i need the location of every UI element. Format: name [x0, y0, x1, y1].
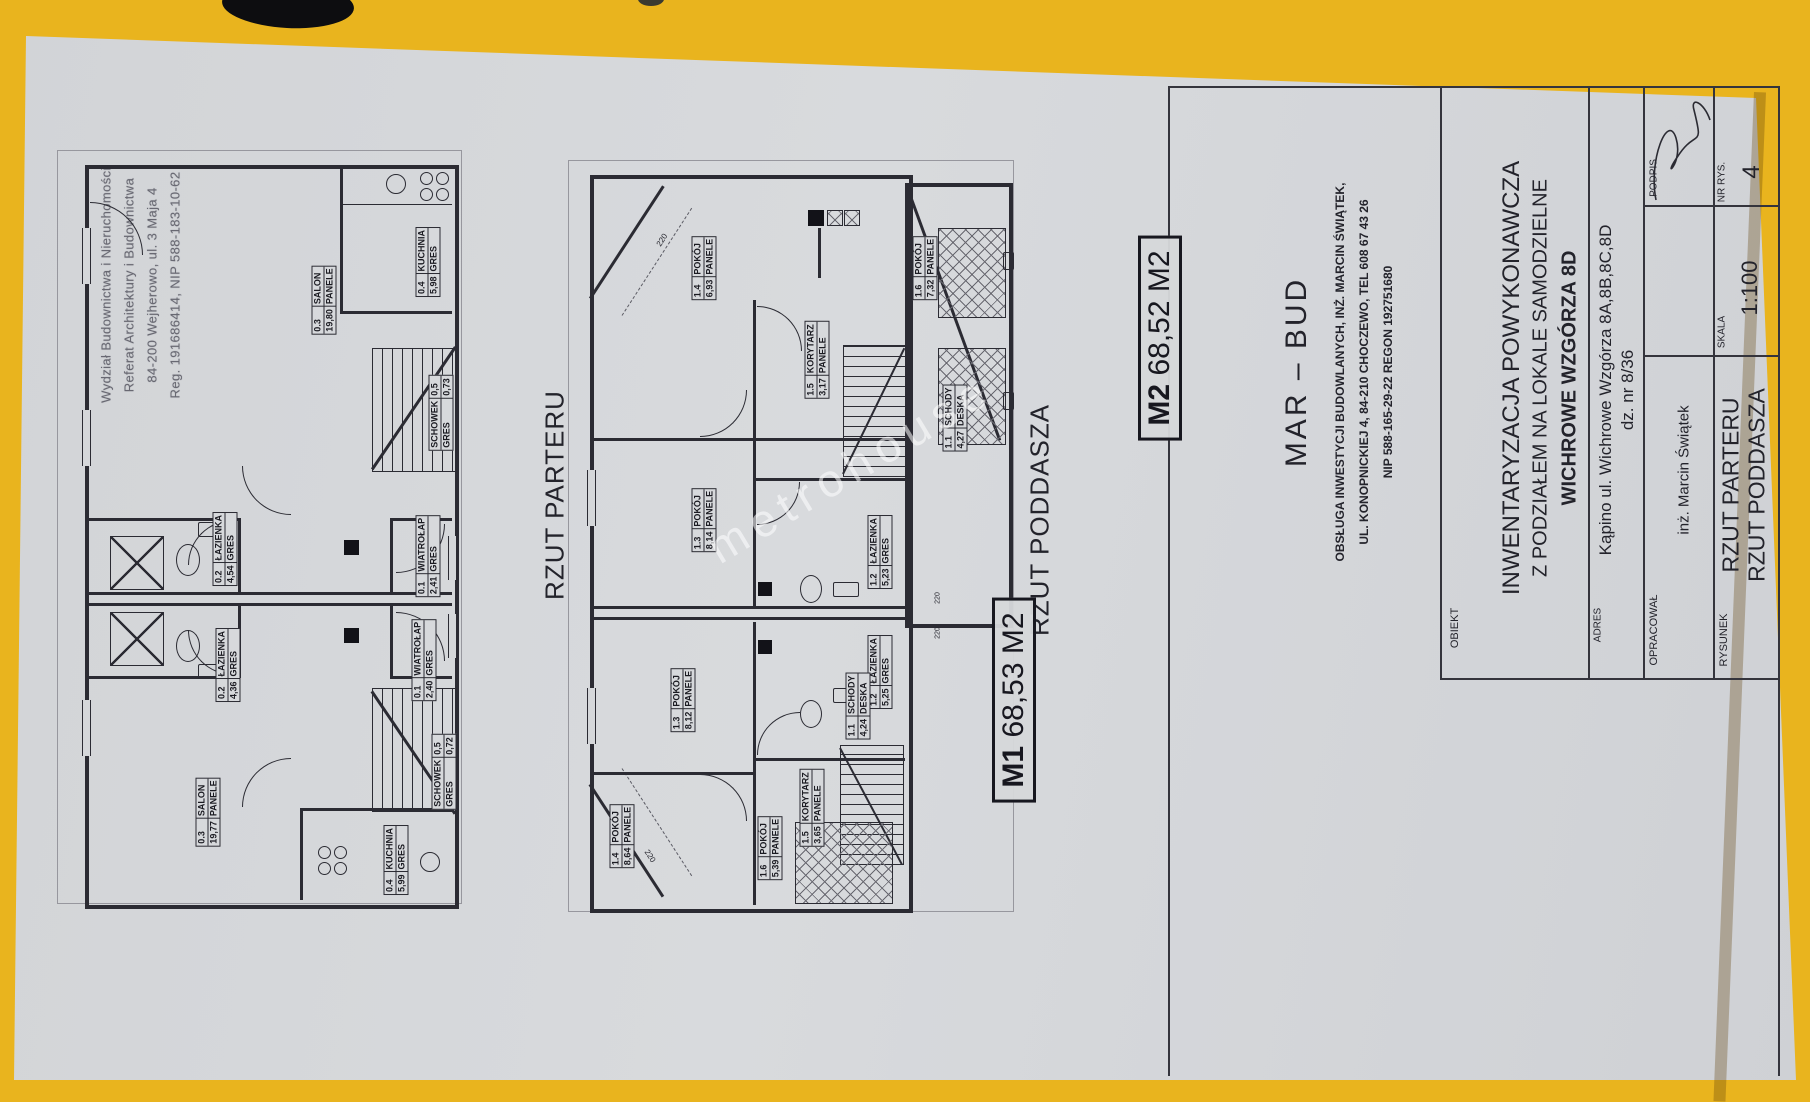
- room-label-pokoj16-m2: 1.6POKÓJ7,32PANELE: [913, 236, 938, 300]
- room-label-wiatrolap-m1: 0.1WIATROŁAP2,40GRES: [412, 619, 437, 701]
- stove-burner-icon: [436, 188, 449, 201]
- kitchen-sink-icon: [420, 852, 440, 872]
- skala-value: 1:100: [1737, 260, 1763, 315]
- stove-burner-icon: [334, 862, 347, 875]
- wall: [300, 808, 303, 900]
- wall: [390, 518, 393, 594]
- wall: [340, 168, 343, 314]
- rysunek-line1: RZUT PARTERU: [1718, 397, 1745, 572]
- room-label-lazienka-m1: 0.2ŁAZIENKA4,36GRES: [216, 628, 241, 702]
- entry-door-gap: [448, 614, 457, 658]
- poddasze-party-wall: [593, 606, 906, 620]
- toilet-icon: [800, 700, 822, 728]
- wall: [753, 300, 756, 606]
- company-line: UL. KONOPNICKIEJ 4, 84-210 CHOCZEWO, TEL…: [1357, 199, 1371, 544]
- shower-icon: [110, 612, 164, 666]
- wall-stub: [818, 228, 821, 278]
- adres-line2: dz. nr 8/36: [1618, 350, 1638, 430]
- room-label-salon-m1: 0.3SALON19,77PANELE: [196, 777, 221, 846]
- edge-tab: [1003, 252, 1014, 270]
- room-label-kuchnia-m2: 0.4KUCHNIA5,98GRES: [416, 227, 441, 297]
- room-label-pokoj16-m1: 1.6POKÓJ5,39PANELE: [758, 816, 783, 880]
- skala-label: SKALA: [1717, 316, 1728, 348]
- stove-burner-icon: [318, 846, 331, 859]
- toilet-icon: [800, 575, 822, 603]
- nr-rys-label: NR RYS.: [1717, 162, 1728, 202]
- room-label-korytarz-m2: 1.5KORYTARZ3,17PANELE: [805, 321, 830, 399]
- company-line: OBSŁUGA INWESTYCJI BUDOWLANYCH, INŻ. MAR…: [1333, 183, 1347, 562]
- boiler-icon: [758, 582, 772, 596]
- window: [82, 700, 91, 756]
- rysunek-line2: RZUT PODDASZA: [1744, 388, 1771, 582]
- unit-m1-badge: M1 68,53 M2: [992, 597, 1036, 802]
- rysunek-label: RYSUNEK: [1718, 614, 1730, 667]
- room-label-pokoj13-m1: 1.3POKÓJ8,12PANELE: [671, 668, 696, 732]
- room-label-korytarz-m1: 1.5KORYTARZ3,65PANELE: [800, 769, 825, 847]
- opracowal-value: inż. Marcin Świątek: [1676, 405, 1693, 534]
- room-label-lazienka-m2: 0.2ŁAZIENKA4,54GRES: [213, 512, 238, 586]
- obiekt-line3: WICHROWE WZGÓRZA 8D: [1559, 251, 1582, 506]
- room-label-kuchnia-m1: 0.4KUCHNIA5,99GRES: [384, 825, 409, 895]
- room-label-schowek-m1: SCHOWEK0,5GRES0,72: [432, 734, 457, 810]
- obiekt-line1: INWENTARYZACJA POWYKONAWCZA: [1498, 161, 1526, 595]
- sink-icon: [833, 582, 859, 597]
- boiler-icon: [758, 640, 772, 654]
- room-label-lazienka-m1: 1.2ŁAZIENKA5,25GRES: [868, 635, 893, 709]
- stove-burner-icon: [420, 188, 433, 201]
- kitchen-sink-icon: [386, 174, 406, 194]
- window: [82, 410, 91, 466]
- boiler-icon: [344, 540, 359, 555]
- room-label-schody-m1: 1.1SCHODY4,24DESKA: [846, 672, 871, 739]
- company-line: NIP 588-165-29-22 REGON 192751680: [1381, 266, 1395, 479]
- titleblock-line: [1713, 86, 1715, 678]
- titleblock-line: [1778, 86, 1780, 1076]
- counter-line: [343, 204, 452, 205]
- parter-party-wall: [88, 592, 452, 606]
- room-label-pokoj14-m2: 1.4POKÓJ6,93PANELE: [692, 236, 717, 300]
- titleblock-line: [1643, 86, 1645, 678]
- titleblock-line: [1440, 678, 1780, 680]
- wall: [238, 518, 241, 594]
- edge-tab: [1003, 392, 1014, 410]
- entry-door-gap: [448, 536, 457, 580]
- window: [587, 688, 596, 744]
- titleblock-line: [1168, 86, 1780, 88]
- shower-icon: [110, 536, 164, 590]
- signature: [1646, 94, 1712, 206]
- stove-burner-icon: [318, 862, 331, 875]
- opracowal-label: OPRACOWAŁ: [1648, 594, 1660, 665]
- dark-object-top: [221, 0, 355, 31]
- stove-burner-icon: [334, 846, 347, 859]
- room-label-lazienka-m2: 1.2ŁAZIENKA5,23GRES: [868, 515, 893, 589]
- wall: [590, 772, 755, 775]
- room-label-wiatrolap-m2: 0.1WIATROŁAP2,41GRES: [416, 515, 441, 597]
- window: [587, 470, 596, 526]
- boiler-icon: [344, 628, 359, 643]
- wall: [590, 438, 755, 441]
- chimney-flue-icon: [827, 210, 843, 226]
- dim-220: 220: [935, 627, 942, 639]
- chimney-icon: [808, 210, 824, 226]
- titleblock-line: [1643, 355, 1780, 357]
- wall: [340, 311, 452, 314]
- chimney-flue-icon: [844, 210, 860, 226]
- titleblock-line: [1588, 86, 1590, 678]
- obiekt-label: OBIEKT: [1449, 608, 1461, 648]
- wall: [753, 622, 756, 905]
- adres-line1: Kąpino ul. Wichrowe Wzgórza 8A,8B,8C,8D: [1596, 225, 1616, 556]
- wall: [390, 604, 393, 678]
- stove-burner-icon: [420, 172, 433, 185]
- stove-burner-icon: [436, 172, 449, 185]
- hatched-deck: [938, 228, 1006, 318]
- company-name: MAR – BUD: [1280, 277, 1314, 467]
- titleblock-line: [1440, 86, 1442, 678]
- room-label-salon-m2: 0.3SALON19,80PANELE: [312, 265, 337, 334]
- unit-m2-badge: M2 68,52 M2: [1138, 235, 1182, 440]
- adres-label: ADRES: [1593, 608, 1604, 642]
- room-label-schowek-m2: SCHOWEK0,5GRES0,73: [429, 375, 454, 451]
- nr-rys-value: 4: [1738, 165, 1766, 178]
- obiekt-line2: Z PODZIAŁEM NA LOKALE SAMODZIELNE: [1530, 179, 1553, 577]
- parter-title: RZUT PARTERU: [540, 390, 571, 600]
- room-label-pokoj14-m1: 1.4POKÓJ8,64PANELE: [610, 804, 635, 868]
- dark-speck-top: [638, 0, 664, 6]
- photo-scene: Wydział Budownictwa i Nieruchomości Refe…: [0, 0, 1810, 1080]
- dim-220: 220: [935, 592, 942, 604]
